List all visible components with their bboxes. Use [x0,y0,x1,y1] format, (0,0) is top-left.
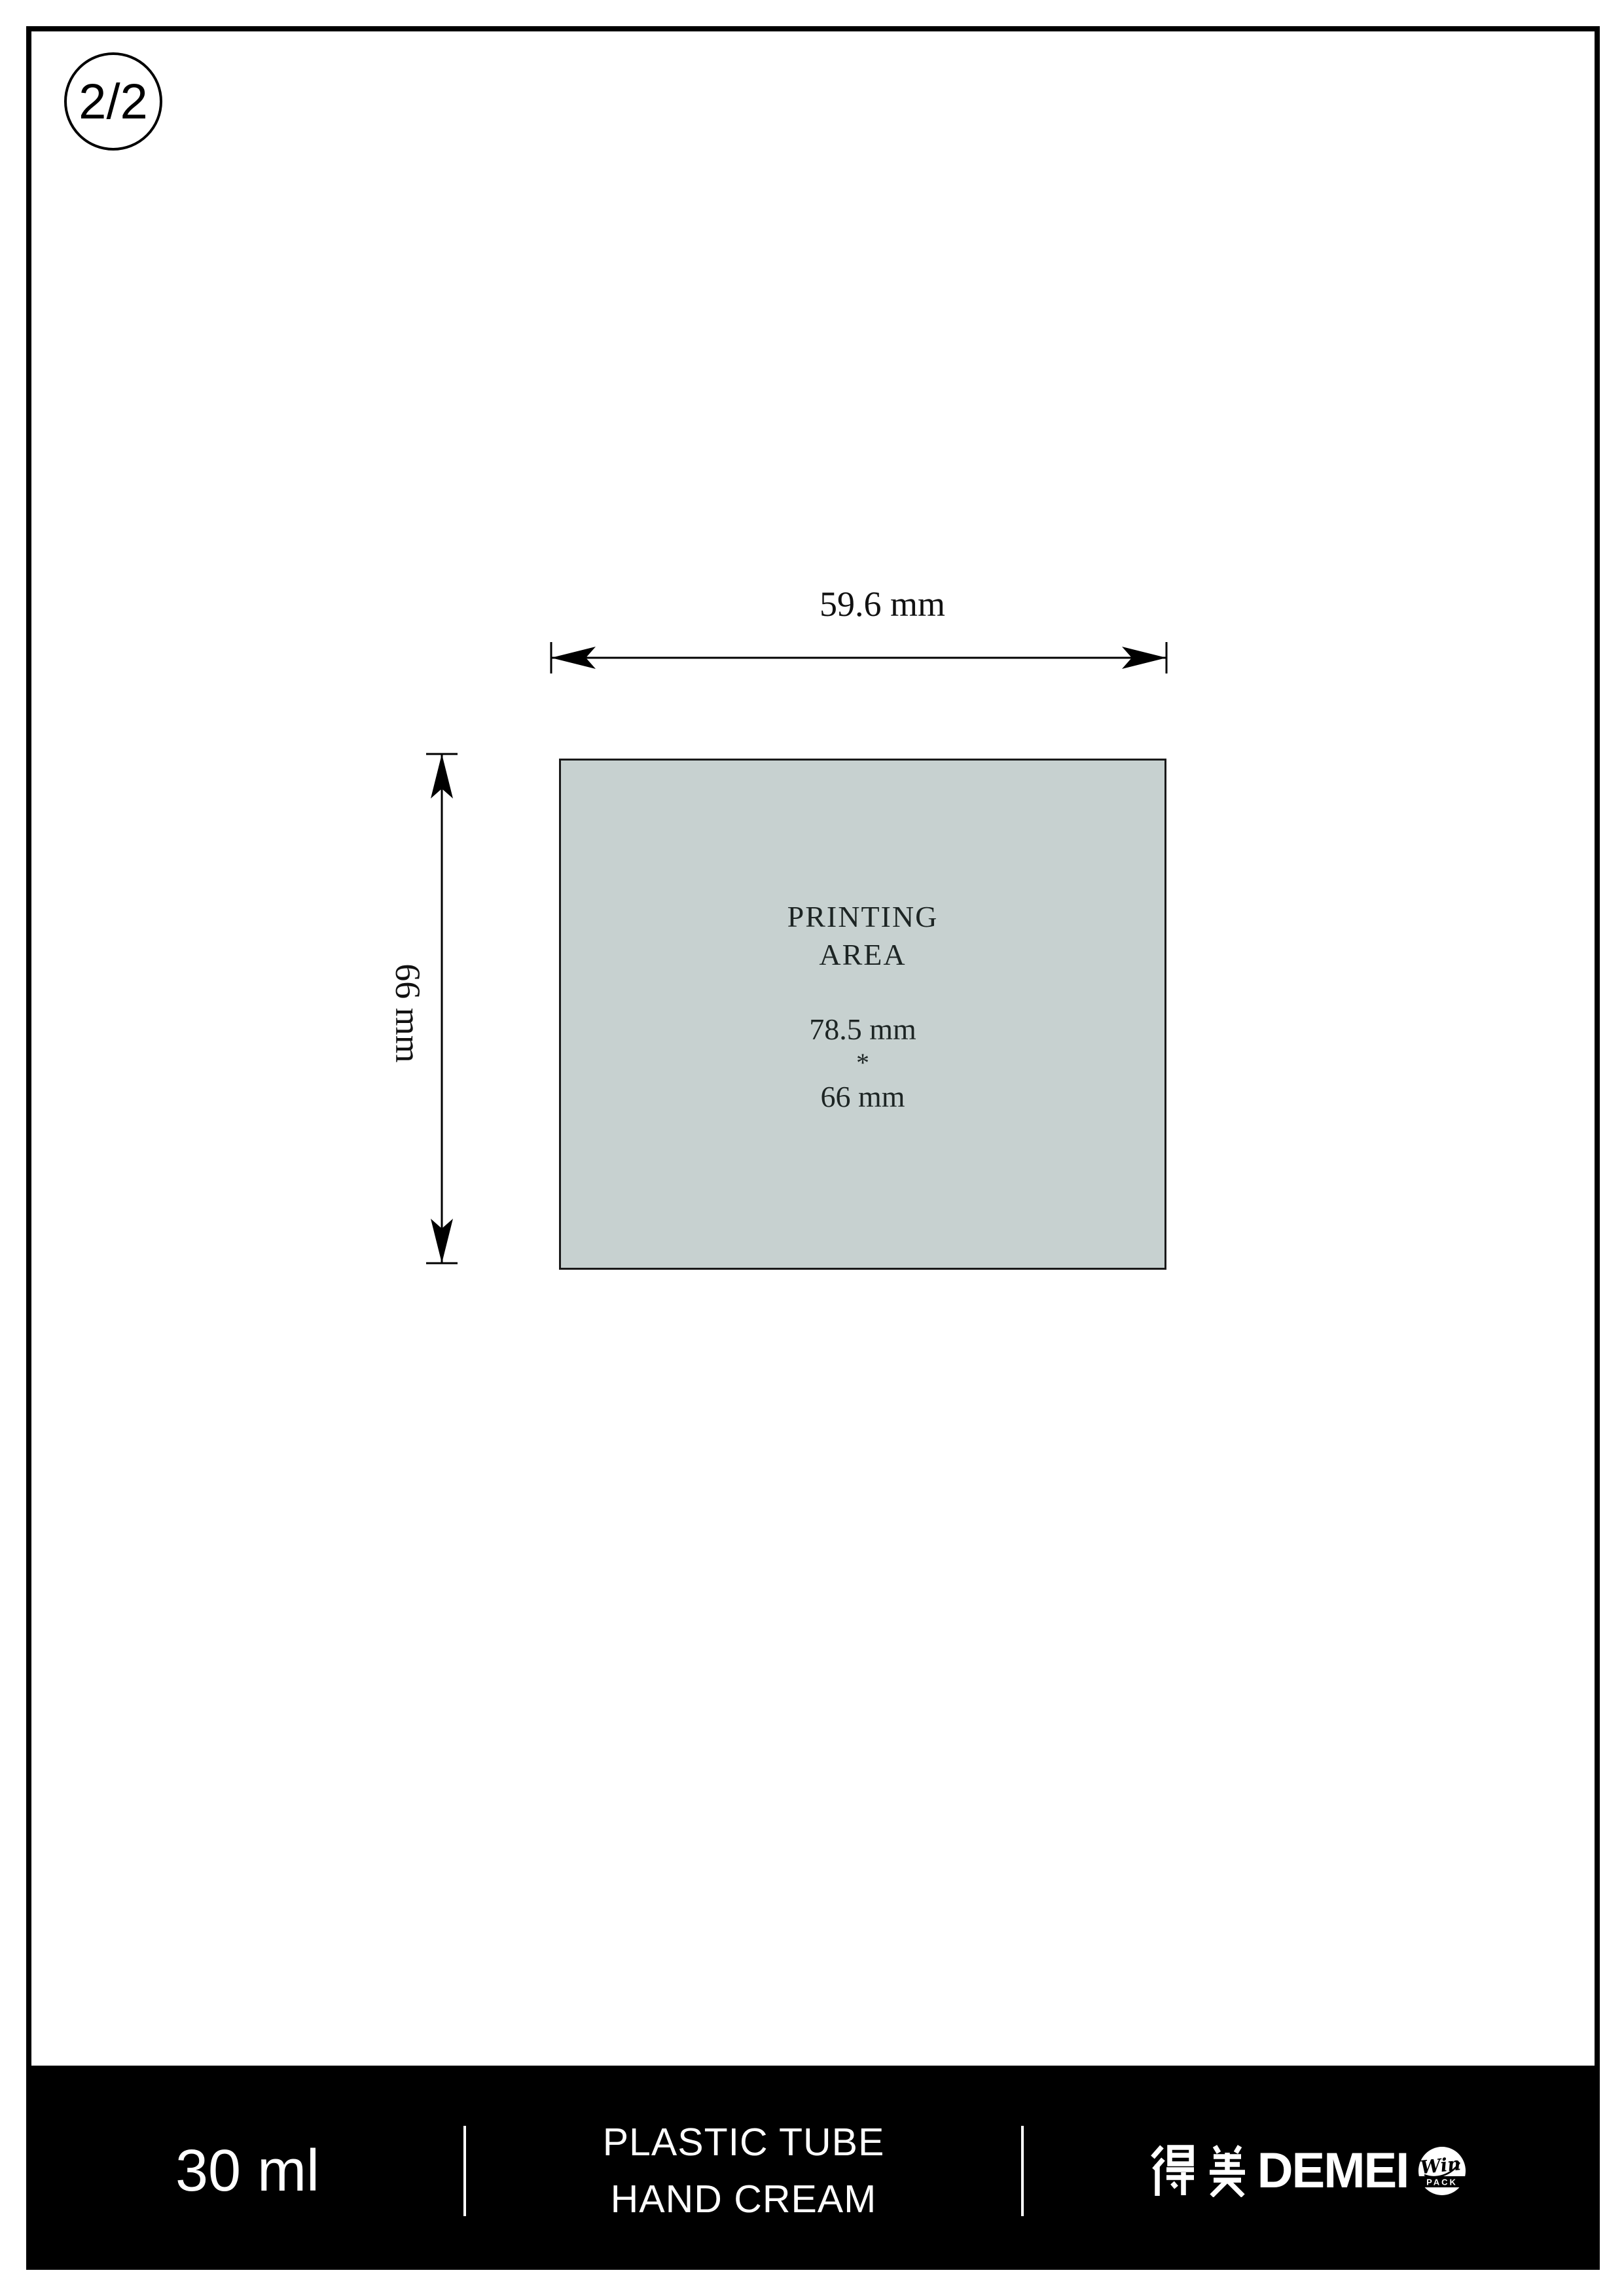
printing-area-dimensions: 78.5 mm * 66 mm [809,1012,916,1114]
brand-name-text: DEMEI [1257,2146,1409,2196]
volume-text: 30 ml [175,2138,319,2205]
printing-area-box: PRINTING AREA 78.5 mm * 66 mm [559,759,1166,1270]
vertical-dimension-arrow [422,751,461,1266]
width-dimension-label: 59.6 mm [679,584,1085,624]
spec-sheet-page: 2/2 59.6 mm 66 mm PRINTING AREA [0,0,1624,2296]
horizontal-dimension-arrow [549,638,1169,677]
brand-logo: 得美 DEMEI Win PACK [1024,2066,1595,2265]
printing-area-separator: * [809,1047,916,1079]
printing-area-title: PRINTING AREA [787,898,939,974]
badge-pack-text: PACK [1426,2178,1458,2187]
product-section: PLASTIC TUBE HAND CREAM [466,2066,1021,2265]
printing-area-height-value: 66 mm [809,1079,916,1114]
volume-section: 30 ml [31,2066,463,2265]
height-dimension-label: 66 mm [388,882,427,1144]
page-number-badge: 2/2 [64,52,162,151]
printing-area-title-line2: AREA [787,936,939,974]
product-line1: PLASTIC TUBE [603,2114,885,2171]
product-line2: HAND CREAM [611,2171,877,2228]
footer-bar: 30 ml PLASTIC TUBE HAND CREAM [31,2066,1595,2265]
printing-area-title-line1: PRINTING [787,898,939,936]
winpack-badge: Win PACK [1416,2145,1468,2197]
page-number-text: 2/2 [79,73,148,130]
printing-area-width-value: 78.5 mm [809,1012,916,1047]
page-border-frame: 2/2 59.6 mm 66 mm PRINTING AREA [26,26,1600,2270]
chinese-logo-glyphs [1151,2145,1249,2197]
